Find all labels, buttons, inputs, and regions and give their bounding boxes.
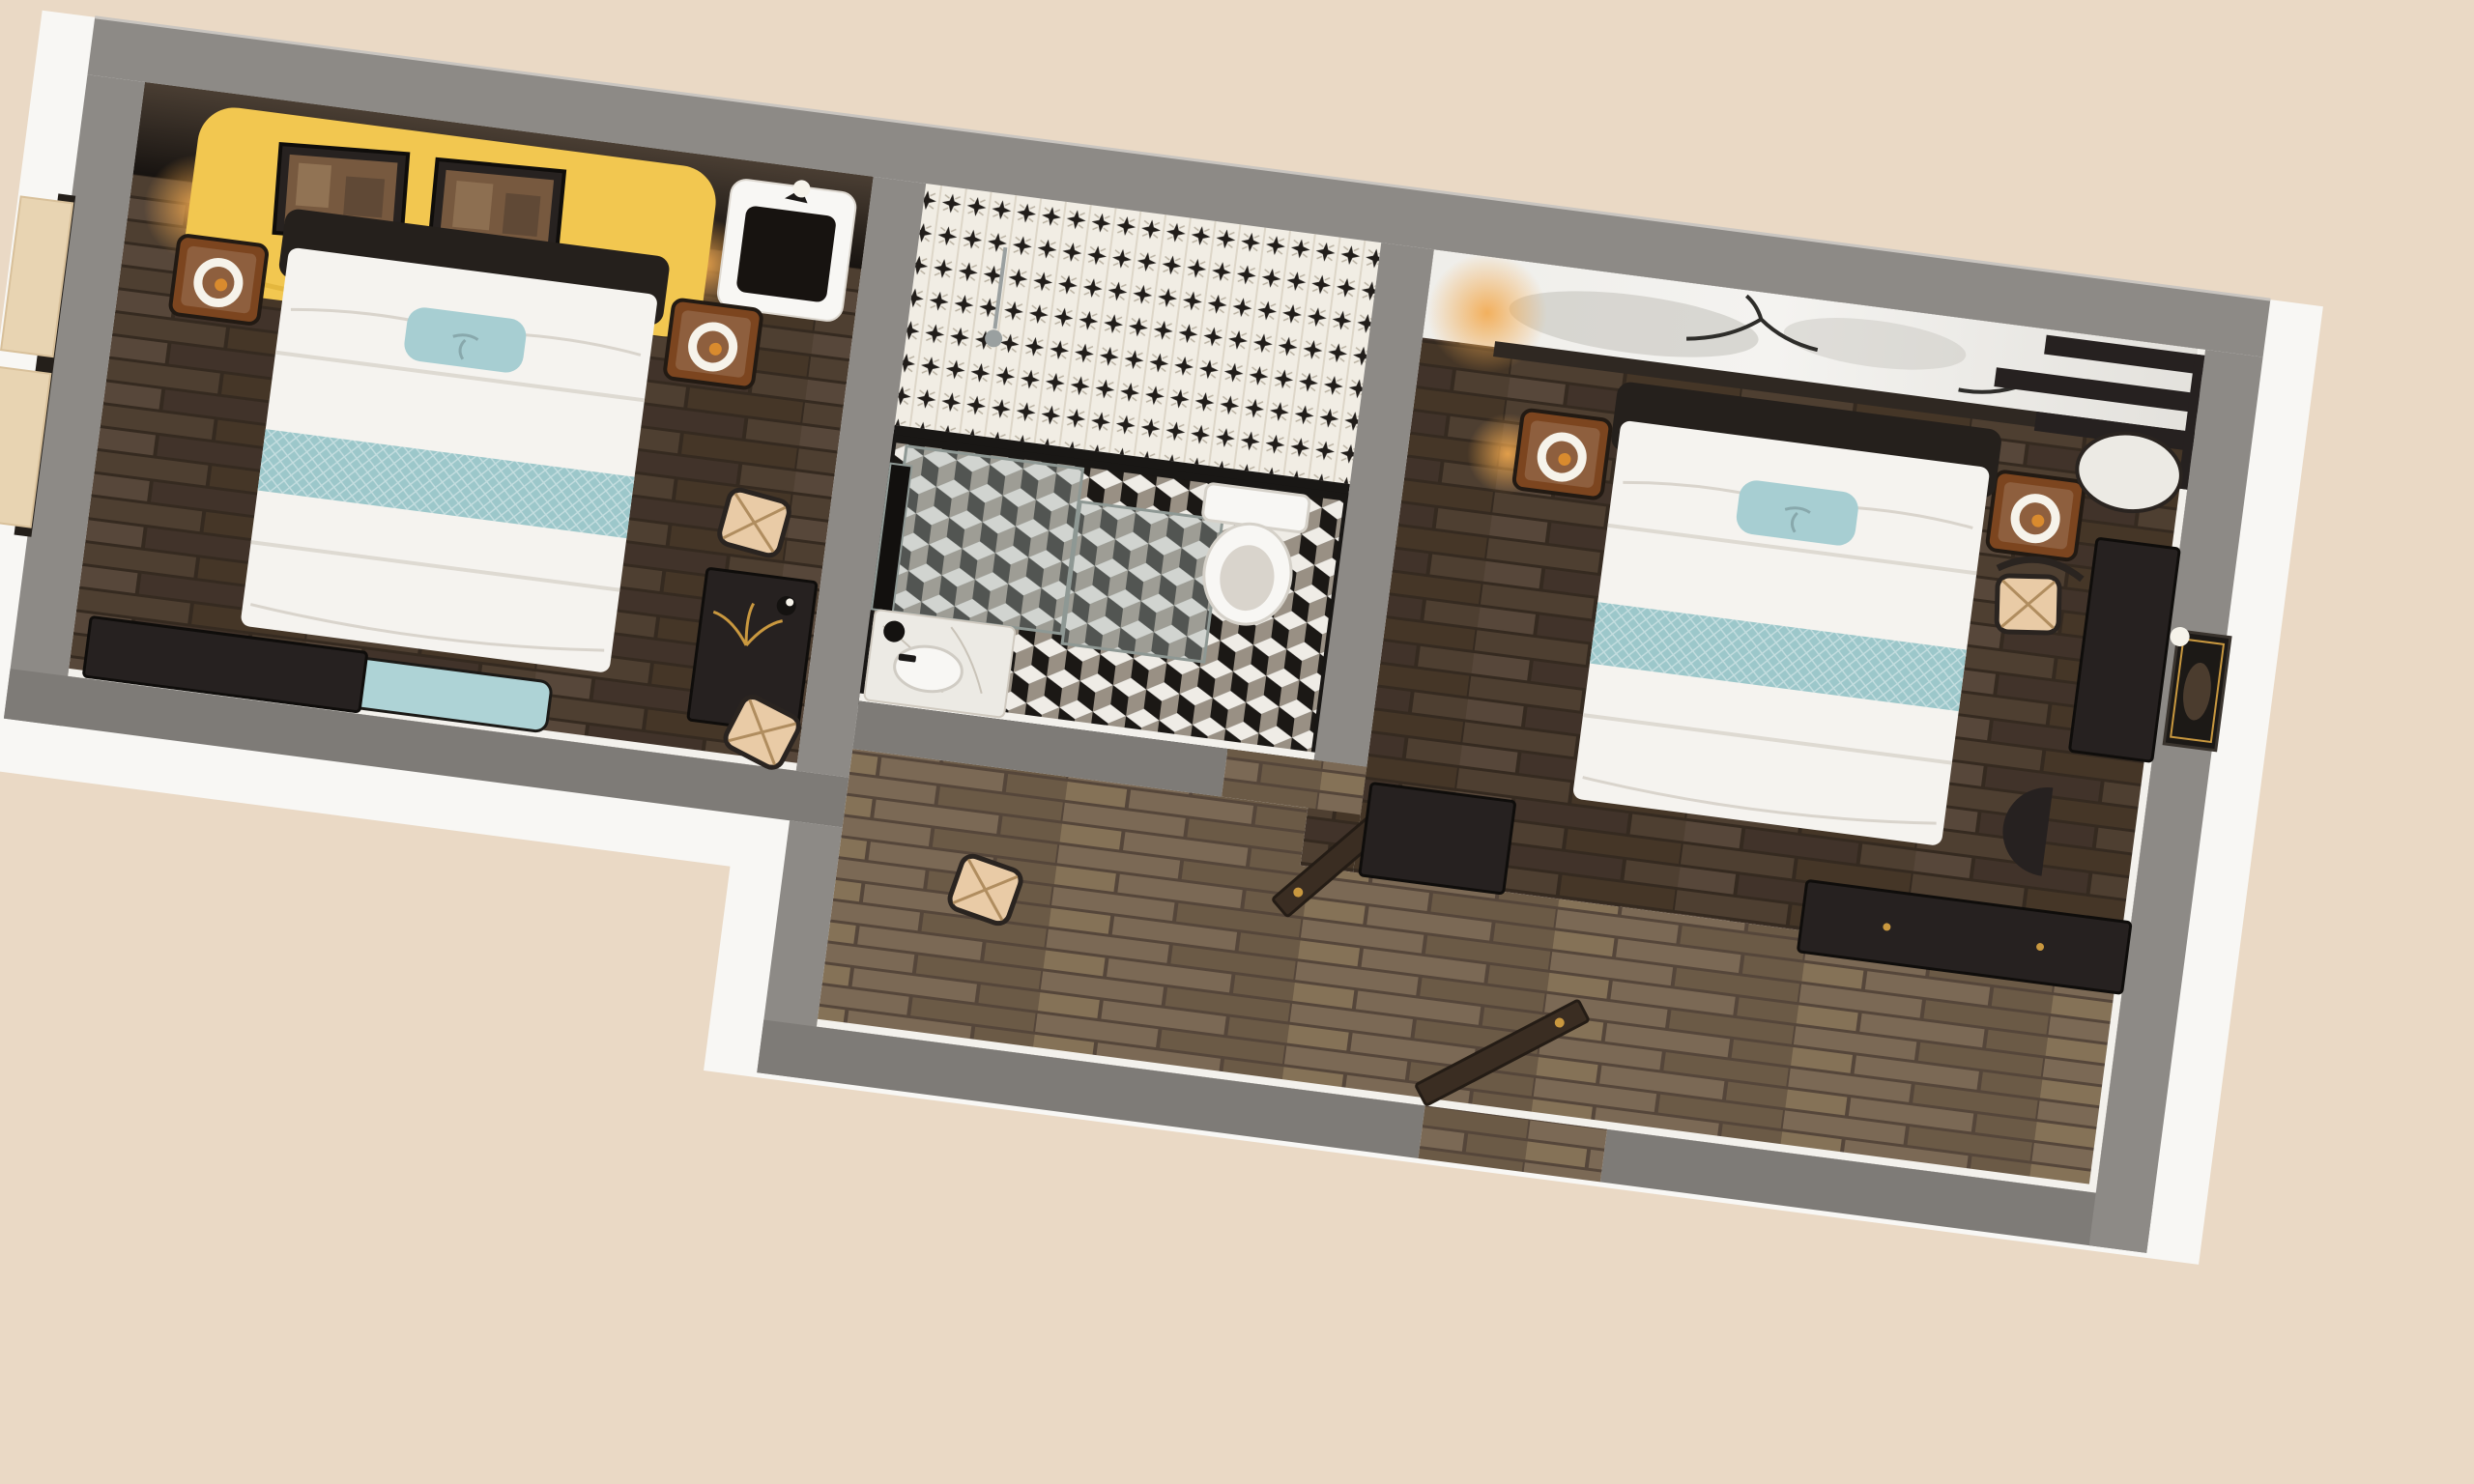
shower-glass-panel [1062,501,1223,662]
shower-glass-panel [885,446,1083,634]
bed [232,208,671,674]
art-blotch [343,176,385,217]
bed [1565,381,2003,847]
art-blotch [452,181,493,230]
vanity-mirror-unit [716,171,858,323]
vanity [864,610,1016,718]
dresser [1360,784,1515,895]
mirror-glass [735,205,837,302]
art-blotch [296,163,331,208]
wishbone-chair [1997,576,2059,634]
floorplan-render [0,0,2474,1484]
art-blotch [503,193,541,237]
